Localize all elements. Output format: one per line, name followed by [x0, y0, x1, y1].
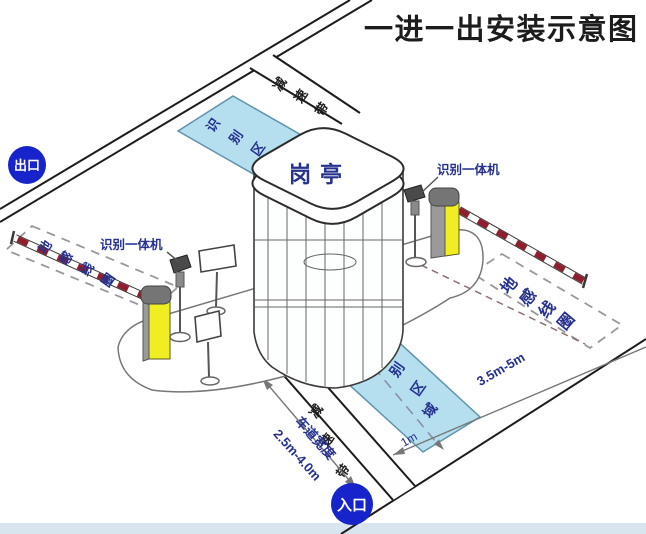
speed-bump-top: 减速带 [250, 55, 360, 124]
svg-text:识别一体机: 识别一体机 [100, 237, 163, 252]
svg-text:出口: 出口 [14, 158, 40, 173]
bottom-strip [0, 523, 646, 534]
barrier-post-left [141, 286, 171, 361]
barrier-post-right [429, 188, 459, 258]
camera-wire-dashline [421, 265, 585, 344]
svg-text:入口: 入口 [337, 497, 367, 514]
ground-loop-right-label: 地感线圈 [497, 273, 579, 333]
guard-booth: 岗亭 [252, 128, 403, 388]
svg-text:识别一体机: 识别一体机 [437, 162, 500, 177]
diagram-title: 一进一出安装示意图 [364, 12, 639, 46]
entrance-badge: 入口 [331, 483, 373, 525]
camera-label-left: 识别一体机 [100, 237, 179, 262]
booth-label: 岗亭 [289, 162, 351, 187]
svg-text:3.5m-5m: 3.5m-5m [474, 349, 527, 388]
diagram-canvas: 减速带 减速带 识别区 识别区域 3.5m-5m 1m 车道宽度 2.5m-4.… [0, 0, 646, 534]
exit-badge: 出口 [8, 146, 46, 184]
